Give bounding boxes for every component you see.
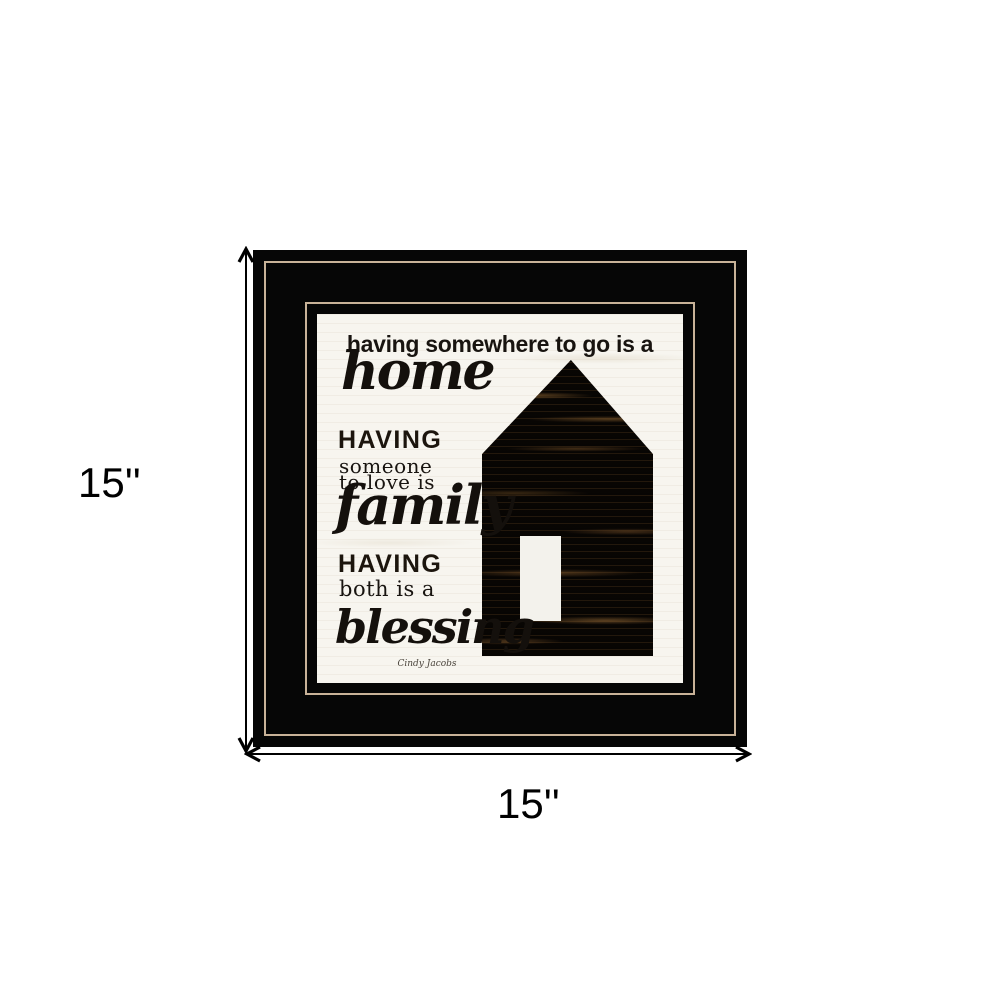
having-caps-1: HAVING	[338, 426, 442, 455]
frame-mat-window: having somewhere to go is a home HAVING …	[305, 302, 695, 695]
home-script-word: home	[341, 346, 494, 398]
height-dimension-label: 15''	[78, 462, 141, 504]
height-dimension-arrow-icon	[236, 246, 256, 754]
product-dimension-diagram: having somewhere to go is a home HAVING …	[0, 0, 1000, 1000]
width-dimension-arrow-icon	[244, 744, 752, 764]
artist-signature: Cindy Jacobs	[367, 659, 487, 669]
family-script-word: family	[335, 478, 511, 532]
product-frame: having somewhere to go is a home HAVING …	[253, 250, 747, 747]
artwork-canvas: having somewhere to go is a home HAVING …	[317, 314, 683, 683]
width-dimension-label: 15''	[497, 783, 560, 825]
blessing-script-word: blessing	[335, 604, 533, 650]
both-is-a-line: both is a	[339, 579, 435, 600]
having-caps-2: HAVING	[338, 550, 442, 579]
